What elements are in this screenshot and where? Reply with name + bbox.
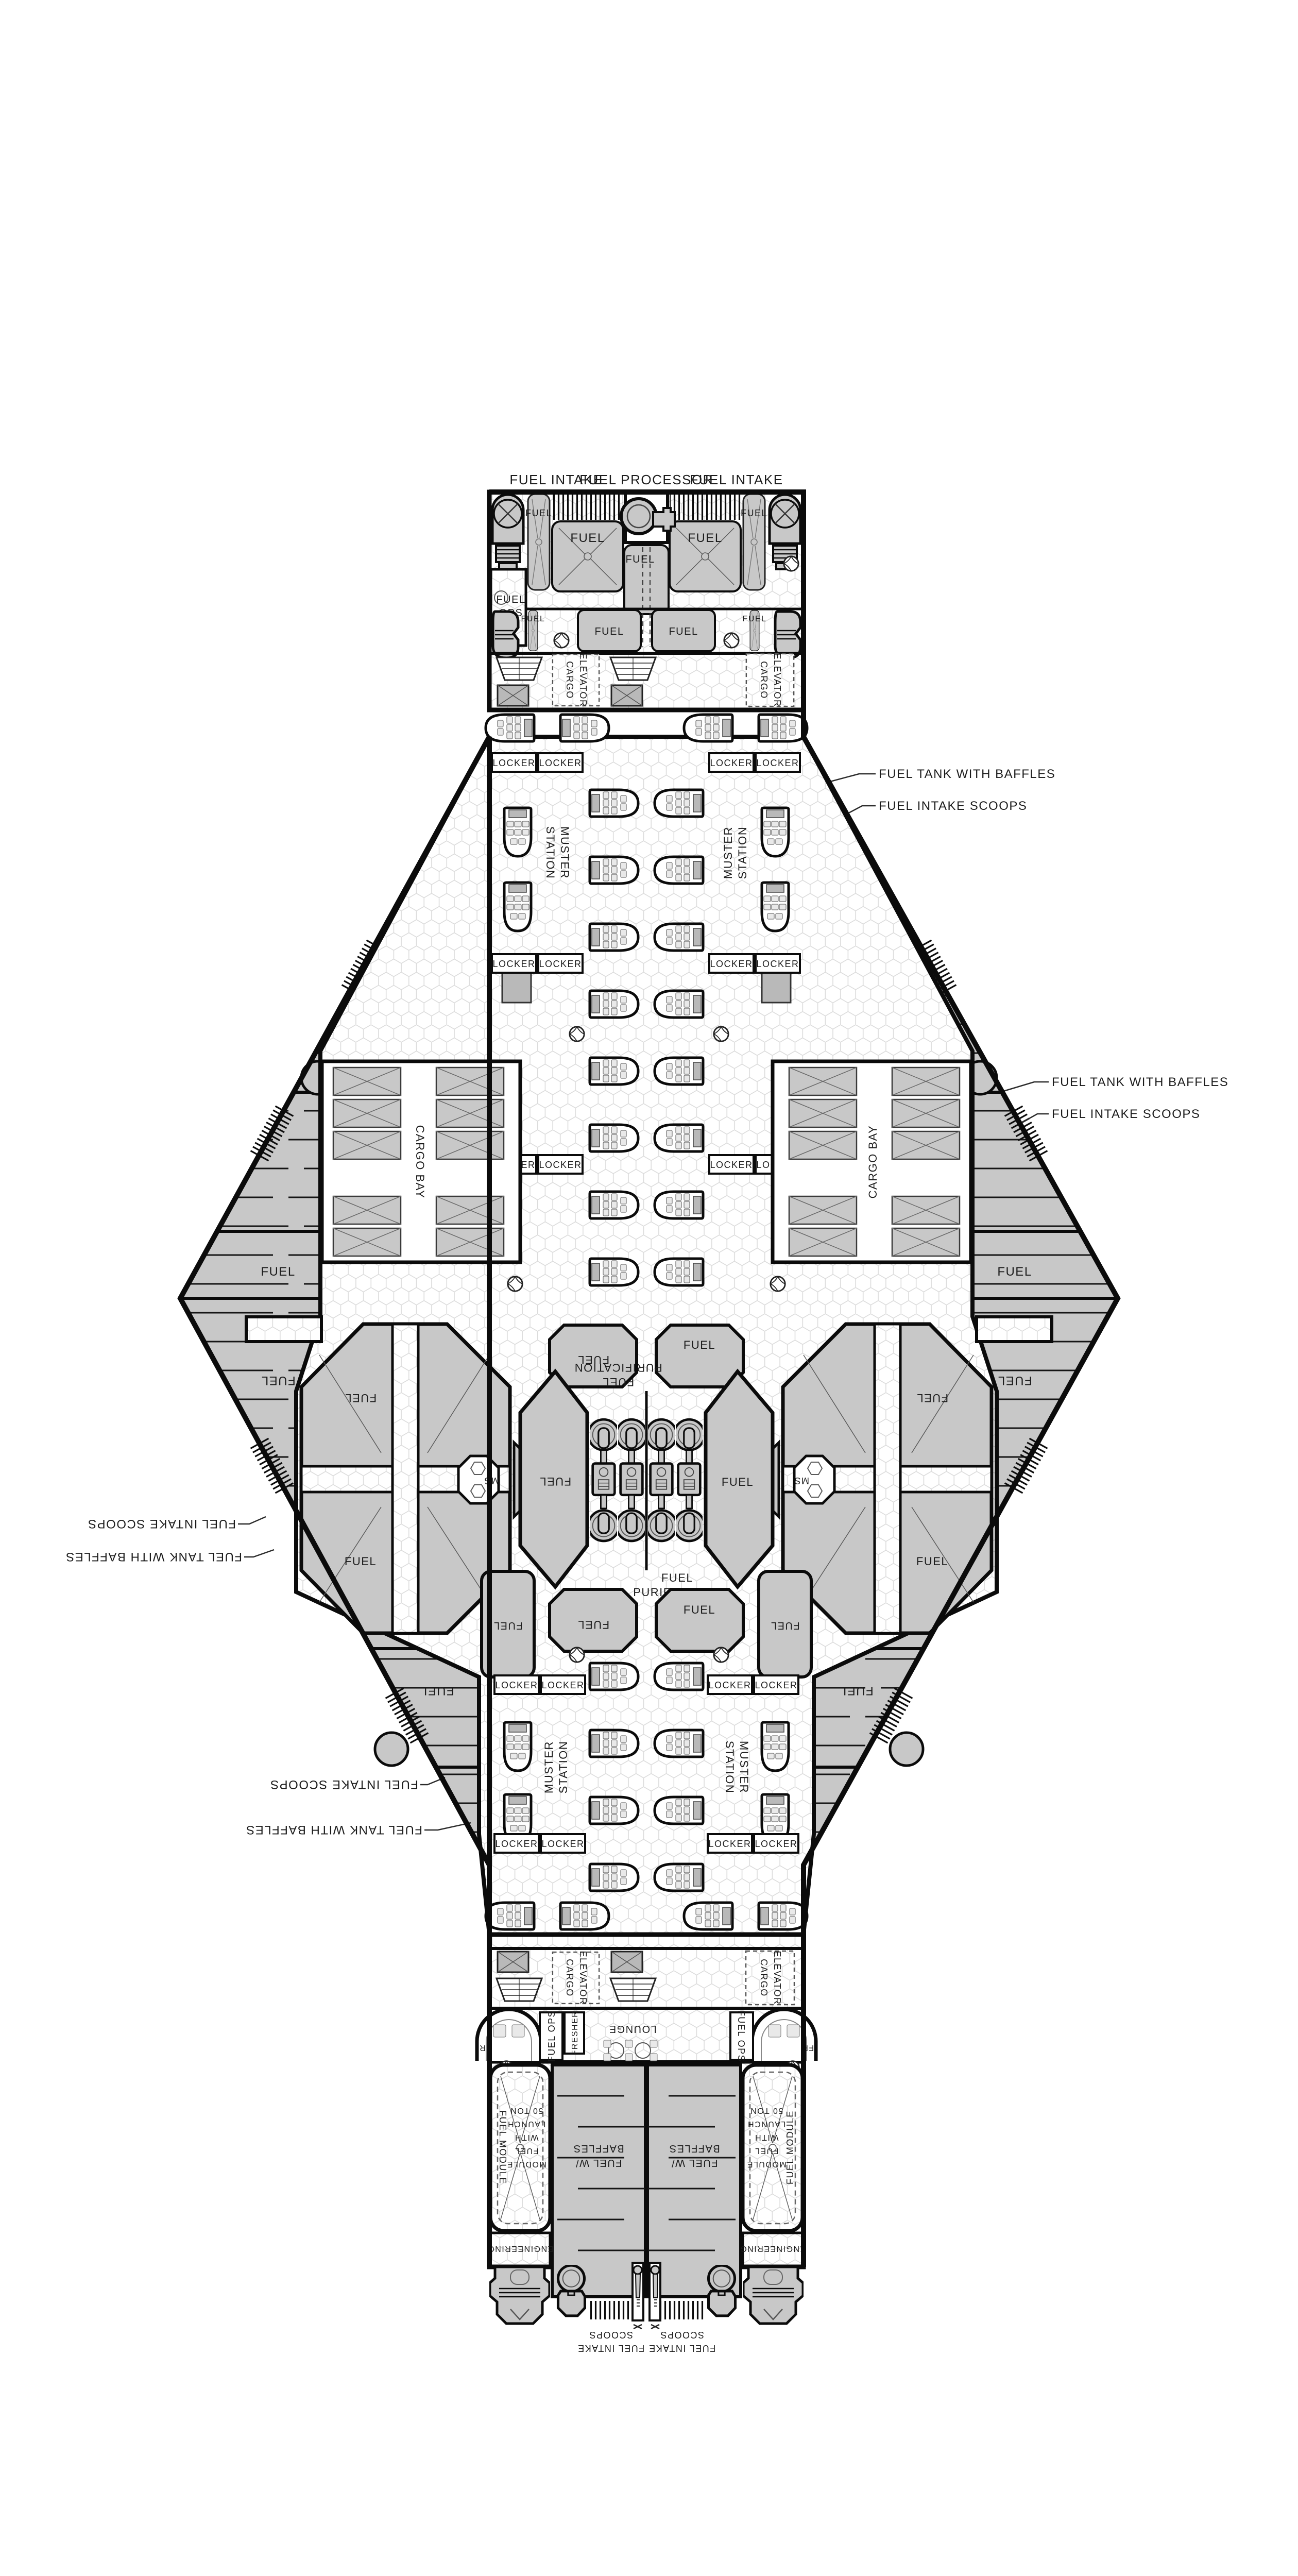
cargo-elevator-label: CARGO bbox=[565, 1959, 575, 1997]
fuel-label: FUEL bbox=[722, 1476, 754, 1488]
fuel-processor-unit bbox=[621, 499, 656, 534]
svg-text:LAUNCH: LAUNCH bbox=[507, 2120, 546, 2128]
muster-station-label: STATION bbox=[544, 826, 557, 879]
iris-valve bbox=[570, 1027, 584, 1041]
machinery-crate bbox=[498, 1952, 528, 1972]
engineering-label: ENGINEERING bbox=[740, 2244, 806, 2253]
drive-nozzle-stbd bbox=[743, 2267, 803, 2324]
fuel-label: FUEL bbox=[525, 508, 552, 518]
iris-valve bbox=[554, 633, 569, 648]
locker-label: LOCKER bbox=[756, 959, 799, 969]
cargo-elevator-aft-left bbox=[553, 1952, 599, 2004]
fuel-label: FUEL bbox=[577, 1618, 609, 1631]
fuel-intake-scoops-label: FUEL INTAKE bbox=[577, 2343, 645, 2353]
stairs bbox=[610, 657, 656, 680]
locker-label: LOCKER bbox=[492, 758, 535, 768]
escape-pod bbox=[759, 715, 807, 741]
intake-scoop-pod-stbd bbox=[709, 2265, 736, 2316]
callout-fuel-tank-baffles-mirrored: FUEL TANK WITH BAFFLES bbox=[65, 1550, 242, 1564]
stairs bbox=[497, 657, 542, 680]
fuel-label: FUEL bbox=[688, 531, 722, 545]
launch-module-stbd: FUEL MODULE 50 TON LAUNCH WITH FUEL MODU… bbox=[743, 2065, 802, 2231]
port-wing-fuel-label: FUEL bbox=[261, 1265, 295, 1279]
stairs bbox=[610, 1978, 656, 2001]
fuel-ops-label-line1: FUEL bbox=[496, 594, 525, 605]
escape-pod bbox=[684, 715, 732, 741]
launch-module-port: FUEL MODULE 50 TON LAUNCH WITH FUEL MODU… bbox=[490, 2065, 550, 2231]
port-tip-access-corridor bbox=[246, 1317, 321, 1342]
iris-valve bbox=[508, 1277, 522, 1291]
muster-station-label: MUSTER bbox=[738, 1741, 750, 1793]
fuel-baffles-label: FUEL W/ bbox=[671, 2157, 718, 2168]
locker-label: LOCKER bbox=[539, 758, 582, 768]
cargo-elevator-fwd-right bbox=[746, 654, 794, 706]
bow-side-pod-left bbox=[493, 612, 518, 658]
locker-label: LOCKER bbox=[708, 1839, 751, 1849]
fuel-baffles-label: FUEL W/ bbox=[575, 2157, 622, 2168]
cargo-elevator-label: CARGO bbox=[565, 661, 575, 699]
fuel-label: FUEL bbox=[916, 1392, 948, 1404]
fuel-label: FUEL bbox=[669, 626, 698, 637]
machinery-crate bbox=[498, 685, 528, 706]
cargo-elevator-label: ELEVATOR bbox=[772, 1951, 782, 2005]
locker-label: LOCKER bbox=[755, 1680, 797, 1690]
fuel-ops-label: FUEL OPS bbox=[546, 2010, 557, 2062]
lounge-label: LOUNGE bbox=[608, 2023, 656, 2035]
fuel-processor-pump bbox=[653, 508, 675, 531]
callout-fuel-tank-baffles-mirrored: FUEL TANK WITH BAFFLES bbox=[246, 1823, 422, 1837]
cargo-bay-label: CARGO BAY bbox=[866, 1125, 879, 1199]
callout-fuel-tank-baffles: FUEL TANK WITH BAFFLES bbox=[879, 767, 1055, 781]
locker-label: LOCKER bbox=[708, 1680, 751, 1690]
locker-label: LOCKER bbox=[492, 959, 535, 969]
cargo-bay-label: CARGO BAY bbox=[414, 1125, 426, 1199]
escape-pod bbox=[759, 1903, 807, 1929]
fuel-intake-scoops-label: SCOOPS bbox=[589, 2330, 633, 2340]
engineering-label: ENGINEERING bbox=[487, 2244, 554, 2253]
svg-text:MODULE: MODULE bbox=[746, 2160, 786, 2168]
escape-pod bbox=[560, 1903, 609, 1929]
callout-fuel-tank-baffles: FUEL TANK WITH BAFFLES bbox=[1052, 1075, 1228, 1089]
locker-label: LOCKER bbox=[495, 1839, 538, 1849]
locker-label: LOCKER bbox=[755, 1839, 797, 1849]
iris-valve bbox=[784, 556, 798, 571]
fuel-purification-label: PURIFICATION bbox=[574, 1361, 662, 1374]
bow-side-pod-right bbox=[775, 612, 800, 658]
port-wing-fuel-label-aft: FUEL bbox=[261, 1374, 295, 1387]
svg-text:WITH: WITH bbox=[755, 2133, 779, 2142]
cargo-elevator-fwd-left bbox=[553, 654, 599, 706]
cargo-elevator-label: CARGO bbox=[759, 661, 769, 699]
cargo-elevator-aft-right bbox=[746, 1951, 794, 2005]
stbd-aft-tank-fuel-label: FUEL bbox=[839, 1684, 873, 1698]
svg-text:MODULE: MODULE bbox=[506, 2160, 546, 2168]
callout-fuel-intake-scoops: FUEL INTAKE SCOOPS bbox=[879, 799, 1027, 813]
stbd-wing-fuel-label: FUEL bbox=[997, 1265, 1032, 1279]
svg-text:WITH: WITH bbox=[515, 2133, 539, 2142]
fuel-intake-label-right: FUEL INTAKE bbox=[690, 472, 783, 487]
iris-valve bbox=[771, 1277, 785, 1291]
stbd-tip-access-corridor bbox=[977, 1317, 1052, 1342]
drive-nozzle-port bbox=[490, 2267, 550, 2324]
fuel-label: FUEL bbox=[594, 626, 624, 637]
locker-label: LOCKER bbox=[541, 1680, 584, 1690]
fuel-label: FUEL bbox=[684, 1603, 715, 1616]
stairs bbox=[497, 1978, 542, 2001]
side-escape-pod bbox=[762, 1722, 789, 1771]
escape-pod bbox=[486, 715, 534, 741]
muster-station-label: MUSTER bbox=[722, 826, 735, 879]
deck-plan-drawing: FUEL FUEL FUEL FUEL FUEL FUEL FUEL INTAK… bbox=[0, 0, 1298, 2576]
fuel-label: FUEL bbox=[345, 1392, 377, 1404]
intake-comb-port bbox=[588, 2301, 634, 2319]
fuel-module-label: FUEL MODULE bbox=[785, 2110, 795, 2184]
port-aft-tank-fuel-label: FUEL bbox=[419, 1684, 454, 1698]
fuel-module-label: FUEL MODULE bbox=[498, 2110, 508, 2184]
locker-label: LOCKER bbox=[756, 758, 799, 768]
escape-pod bbox=[560, 715, 609, 741]
locker-label: LOCKER bbox=[710, 959, 753, 969]
fuel-baffles-label: BAFFLES bbox=[573, 2143, 624, 2154]
fuel-label: FUEL bbox=[684, 1338, 715, 1351]
locker-label: LOCKER bbox=[495, 1680, 538, 1690]
fuel-label: FUEL bbox=[521, 615, 545, 623]
fuel-label: FUEL bbox=[916, 1555, 948, 1568]
fuel-tank-squat bbox=[656, 1325, 743, 1387]
svg-text:FUEL: FUEL bbox=[515, 2146, 539, 2155]
svg-text:50 TON: 50 TON bbox=[510, 2106, 543, 2115]
callout-fuel-intake-scoops-mirrored: FUEL INTAKE SCOOPS bbox=[88, 1517, 236, 1531]
machinery-crate bbox=[611, 1952, 642, 1972]
iris-valve bbox=[714, 1027, 728, 1041]
ms-label: MS bbox=[794, 1476, 809, 1486]
fuel-purification-label: FUEL bbox=[661, 1571, 693, 1584]
fuel-tank-squat bbox=[656, 1589, 743, 1651]
bow-scoop-turbine-left bbox=[492, 495, 523, 569]
svg-text:LAUNCH: LAUNCH bbox=[747, 2120, 786, 2128]
callout-fuel-intake-scoops: FUEL INTAKE SCOOPS bbox=[1052, 1107, 1200, 1121]
starboard-aft-sensor-dome bbox=[890, 1733, 923, 1766]
locker-label: LOCKER bbox=[539, 1160, 582, 1170]
muster-station-label: STATION bbox=[557, 1741, 570, 1794]
muster-station-label: MUSTER bbox=[558, 826, 571, 879]
fuel-label: FUEL bbox=[493, 1620, 522, 1631]
fuel-baffles-label: BAFFLES bbox=[669, 2143, 720, 2154]
fuel-purification-label: FUEL bbox=[602, 1376, 634, 1388]
starboard-cargo-bay: CARGO BAY bbox=[773, 1061, 971, 1262]
fuel-intake-scoops-label: SCOOPS bbox=[660, 2330, 704, 2340]
fuel-label: FUEL bbox=[770, 1620, 799, 1631]
fuel-ops-label: FUEL OPS bbox=[736, 2010, 746, 2062]
side-escape-pod bbox=[504, 883, 531, 931]
cargo-elevator-label: ELEVATOR bbox=[578, 653, 588, 707]
escape-pod bbox=[486, 1903, 534, 1929]
muster-station-label: MUSTER bbox=[542, 1741, 555, 1793]
cargo-elevator-label: ELEVATOR bbox=[578, 1951, 588, 2005]
svg-text:FUEL: FUEL bbox=[755, 2146, 779, 2155]
side-escape-pod bbox=[762, 883, 789, 931]
intake-comb-stbd bbox=[659, 2301, 705, 2319]
machinery-crate bbox=[611, 685, 642, 706]
iris-valve bbox=[724, 633, 739, 648]
fuel-label: FUEL bbox=[570, 531, 605, 545]
side-escape-pod bbox=[504, 808, 531, 856]
fuel-label: FUEL bbox=[345, 1555, 377, 1568]
cargo-elevator-label: CARGO bbox=[759, 1959, 769, 1997]
iris-valve bbox=[714, 1648, 728, 1662]
fuel-label: FUEL bbox=[741, 508, 767, 518]
port-aft-sensor-dome bbox=[375, 1733, 408, 1766]
cargo-elevator-label: ELEVATOR bbox=[772, 653, 782, 707]
locker-label: LOCKER bbox=[539, 959, 582, 969]
fuel-label: FUEL bbox=[743, 615, 767, 623]
muster-station-label: STATION bbox=[736, 826, 749, 879]
callout-fuel-intake-scoops-mirrored: FUEL INTAKE SCOOPS bbox=[270, 1777, 418, 1791]
side-escape-pod bbox=[762, 808, 789, 856]
fuel-label: FUEL bbox=[539, 1475, 571, 1488]
stern-fuel-tanks: BAFFLES FUEL W/ BAFFLES FUEL W/ bbox=[552, 2065, 741, 2297]
intake-scoop-pod-port bbox=[558, 2265, 585, 2316]
fuel-intake-grille-left bbox=[552, 493, 623, 520]
iris-valve bbox=[570, 1648, 584, 1662]
locker-label: LOCKER bbox=[710, 758, 753, 768]
fuel-intake-grille-right bbox=[670, 493, 741, 520]
muster-station-label: STATION bbox=[723, 1741, 736, 1794]
escape-pod bbox=[684, 1903, 732, 1929]
port-fuel-cluster: FUEL FUEL MS bbox=[301, 1324, 510, 1633]
side-escape-pod bbox=[504, 1722, 531, 1771]
locker-label: LOCKER bbox=[541, 1839, 584, 1849]
fuel-label: FUEL bbox=[625, 554, 655, 565]
locker-label: LOCKER bbox=[710, 1160, 753, 1170]
svg-text:50 TON: 50 TON bbox=[750, 2106, 783, 2115]
fuel-intake-scoops-label: FUEL INTAKE bbox=[648, 2343, 716, 2353]
fresher-label: FRESHER bbox=[571, 2011, 579, 2056]
stbd-wing-fuel-label-aft: FUEL bbox=[997, 1374, 1032, 1387]
